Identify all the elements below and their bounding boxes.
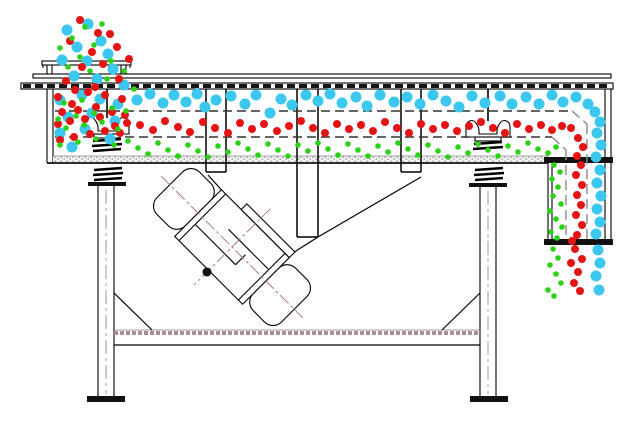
coarse-oversize-particle xyxy=(362,101,373,112)
medium-midsize-particle xyxy=(125,55,133,63)
medium-midsize-particle xyxy=(54,93,62,101)
medium-midsize-particle xyxy=(236,119,244,127)
lower-coil-spring xyxy=(93,168,123,180)
fine-undersize-particle xyxy=(77,54,83,60)
fine-undersize-particle xyxy=(355,147,361,153)
fine-undersize-particle xyxy=(135,145,141,151)
medium-midsize-particle xyxy=(285,122,293,130)
medium-midsize-particle xyxy=(573,152,581,160)
medium-midsize-particle xyxy=(477,118,485,126)
fine-undersize-particle xyxy=(445,154,451,160)
fine-undersize-particle xyxy=(435,148,441,154)
coarse-oversize-particle xyxy=(181,97,192,108)
coarse-oversize-particle xyxy=(200,102,211,113)
fine-undersize-particle xyxy=(87,68,93,74)
fine-undersize-particle xyxy=(465,150,471,156)
fine-undersize-particle xyxy=(545,287,551,293)
medium-midsize-particle xyxy=(574,134,582,142)
coarse-oversize-particle xyxy=(57,55,68,66)
coarse-oversize-particle xyxy=(240,99,251,110)
fine-undersize-particle xyxy=(55,116,61,122)
medium-midsize-particle xyxy=(94,29,102,37)
vibrating-screen-diagram xyxy=(0,0,638,428)
medium-midsize-particle xyxy=(576,287,584,295)
medium-midsize-particle xyxy=(260,120,268,128)
medium-midsize-particle xyxy=(577,161,585,169)
coarse-oversize-particle xyxy=(108,64,119,75)
fine-undersize-particle xyxy=(315,140,321,146)
fine-undersize-particle xyxy=(91,42,97,48)
medium-midsize-particle xyxy=(568,237,576,245)
medium-midsize-particle xyxy=(84,88,92,96)
medium-midsize-particle xyxy=(92,103,100,111)
right-leg xyxy=(470,187,508,402)
coarse-oversize-particle xyxy=(351,92,362,103)
fine-undersize-particle xyxy=(81,122,87,128)
medium-midsize-particle xyxy=(113,43,121,51)
fine-undersize-particle xyxy=(335,152,341,158)
coarse-oversize-particle xyxy=(211,95,222,106)
coarse-oversize-particle xyxy=(595,117,606,128)
medium-midsize-particle xyxy=(453,127,461,135)
coarse-oversize-particle xyxy=(96,36,107,47)
medium-midsize-particle xyxy=(273,127,281,135)
medium-midsize-particle xyxy=(345,125,353,133)
medium-midsize-particle xyxy=(66,117,74,125)
fine-undersize-particle xyxy=(559,224,565,230)
medium-midsize-particle xyxy=(101,91,109,99)
coarse-oversize-particle xyxy=(276,94,287,105)
fine-undersize-particle xyxy=(155,140,161,146)
fine-undersize-particle xyxy=(405,146,411,152)
medium-particles xyxy=(54,16,587,295)
medium-midsize-particle xyxy=(501,129,509,137)
fine-undersize-particle xyxy=(495,153,501,159)
fine-undersize-particle xyxy=(63,125,69,131)
fine-undersize-particle xyxy=(61,100,67,106)
coarse-oversize-particle xyxy=(591,271,602,282)
coarse-oversize-particle xyxy=(480,98,491,109)
medium-midsize-particle xyxy=(537,121,545,129)
coarse-oversize-particle xyxy=(591,229,602,240)
motor-cable-gland xyxy=(203,268,212,277)
medium-midsize-particle xyxy=(74,106,82,114)
fine-undersize-particle xyxy=(295,142,301,148)
fine-undersize-particle xyxy=(245,146,251,152)
coarse-oversize-particle xyxy=(69,71,80,82)
fine-undersize-particle xyxy=(165,147,171,153)
fine-undersize-particle xyxy=(553,216,559,222)
fine-undersize-particle xyxy=(551,293,557,299)
coarse-oversize-particle xyxy=(594,285,605,296)
right-foot-plate xyxy=(470,396,508,402)
fine-undersize-particle xyxy=(485,147,491,153)
fine-undersize-particle xyxy=(73,113,79,119)
medium-midsize-particle xyxy=(211,124,219,132)
chute-bottom-flange xyxy=(544,239,613,245)
fine-undersize-particle xyxy=(455,144,461,150)
medium-midsize-particle xyxy=(573,191,581,199)
medium-midsize-particle xyxy=(381,118,389,126)
fine-undersize-particle xyxy=(99,119,105,125)
coarse-oversize-particle xyxy=(251,90,262,101)
spring-seat-flange xyxy=(88,182,126,186)
medium-midsize-particle xyxy=(76,16,84,24)
medium-midsize-particle xyxy=(224,129,232,137)
medium-midsize-particle xyxy=(572,211,580,219)
coarse-oversize-particle xyxy=(596,191,607,202)
medium-midsize-particle xyxy=(525,125,533,133)
medium-midsize-particle xyxy=(579,143,587,151)
left-foot-plate xyxy=(87,396,125,402)
medium-midsize-particle xyxy=(417,120,425,128)
medium-midsize-particle xyxy=(101,127,109,135)
coarse-oversize-particle xyxy=(415,99,426,110)
fine-undersize-particle xyxy=(558,201,564,207)
coarse-oversize-particle xyxy=(521,92,532,103)
coarse-oversize-particle xyxy=(301,90,312,101)
fine-undersize-particle xyxy=(195,148,201,154)
medium-midsize-particle xyxy=(174,123,182,131)
coarse-oversize-particle xyxy=(192,89,203,100)
fine-undersize-particle xyxy=(79,97,85,103)
medium-midsize-particle xyxy=(136,121,144,129)
medium-midsize-particle xyxy=(161,117,169,125)
medium-midsize-particle xyxy=(578,181,586,189)
coarse-oversize-particle xyxy=(571,92,582,103)
coarse-oversize-particle xyxy=(596,140,607,151)
fine-undersize-particle xyxy=(57,45,63,51)
fine-undersize-particle xyxy=(550,193,556,199)
fine-undersize-particle xyxy=(275,147,281,153)
fine-undersize-particle xyxy=(547,262,553,268)
coarse-oversize-particle xyxy=(592,204,603,215)
medium-midsize-particle xyxy=(574,268,582,276)
fine-undersize-particle xyxy=(115,126,121,132)
medium-midsize-particle xyxy=(405,129,413,137)
medium-midsize-particle xyxy=(429,125,437,133)
fine-undersize-particle xyxy=(104,76,110,82)
right-gusset xyxy=(442,293,480,330)
coarse-oversize-particle xyxy=(313,96,324,107)
coarse-oversize-particle xyxy=(547,90,558,101)
fine-undersize-particle xyxy=(205,154,211,160)
medium-midsize-particle xyxy=(465,122,473,130)
fine-undersize-particle xyxy=(185,142,191,148)
coarse-oversize-particle xyxy=(467,91,478,102)
coarse-oversize-particle xyxy=(507,99,518,110)
fine-undersize-particle xyxy=(215,143,221,149)
coarse-oversize-particle xyxy=(62,25,73,36)
left-leg xyxy=(87,186,125,402)
coarse-oversize-particle xyxy=(169,90,180,101)
medium-midsize-particle xyxy=(91,83,99,91)
medium-midsize-particle xyxy=(62,77,70,85)
fine-undersize-particle xyxy=(548,229,554,235)
fine-undersize-particle xyxy=(365,153,371,159)
medium-midsize-particle xyxy=(489,124,497,132)
fine-undersize-particle xyxy=(375,143,381,149)
fine-undersize-particle xyxy=(385,149,391,155)
coarse-oversize-particle xyxy=(145,89,156,100)
medium-midsize-particle xyxy=(577,201,585,209)
fine-undersize-particle xyxy=(93,136,99,142)
fine-undersize-particle xyxy=(558,280,564,286)
fine-undersize-particle xyxy=(555,184,561,190)
medium-midsize-particle xyxy=(548,126,556,134)
lower-coil-spring xyxy=(474,168,504,180)
medium-midsize-particle xyxy=(115,75,123,83)
medium-midsize-particle xyxy=(393,124,401,132)
trough-bottom-plate xyxy=(53,156,548,163)
fine-undersize-particle xyxy=(225,149,231,155)
fine-undersize-particle xyxy=(425,142,431,148)
fine-undersize-particle xyxy=(553,271,559,277)
spring-seat-flange xyxy=(469,183,507,187)
coarse-oversize-particle xyxy=(592,128,603,139)
coarse-oversize-particle xyxy=(325,89,336,100)
medium-midsize-particle xyxy=(186,128,194,136)
medium-midsize-particle xyxy=(106,30,114,38)
fine-undersize-particle xyxy=(525,140,531,146)
fine-undersize-particle xyxy=(175,153,181,159)
fine-undersize-particle xyxy=(91,110,97,116)
medium-midsize-particle xyxy=(118,95,126,103)
coarse-oversize-particle xyxy=(593,245,604,256)
diagram-canvas xyxy=(0,0,638,428)
fine-undersize-particle xyxy=(255,152,261,158)
medium-midsize-particle xyxy=(58,108,66,116)
medium-midsize-particle xyxy=(513,120,521,128)
fine-undersize-particle xyxy=(75,139,81,145)
medium-midsize-particle xyxy=(248,125,256,133)
fine-undersize-particle xyxy=(395,140,401,146)
coarse-oversize-particle xyxy=(265,108,276,119)
coarse-oversize-particle xyxy=(226,91,237,102)
fine-undersize-particle xyxy=(505,143,511,149)
coarse-oversize-particle xyxy=(558,97,569,108)
medium-midsize-particle xyxy=(309,124,317,132)
medium-midsize-particle xyxy=(558,122,566,130)
medium-midsize-particle xyxy=(297,117,305,125)
medium-midsize-particle xyxy=(578,221,586,229)
coarse-oversize-particle xyxy=(534,99,545,110)
fine-undersize-particle xyxy=(65,64,71,70)
medium-midsize-particle xyxy=(78,63,86,71)
coarse-oversize-particle xyxy=(495,91,506,102)
medium-midsize-particle xyxy=(572,171,580,179)
fine-undersize-particle xyxy=(325,146,331,152)
left-gusset xyxy=(114,293,152,330)
fine-undersize-particle xyxy=(131,86,137,92)
coarse-oversize-particle xyxy=(428,90,439,101)
fine-undersize-particle xyxy=(108,58,114,64)
fine-undersize-particle xyxy=(415,152,421,158)
coarse-oversize-particle xyxy=(595,165,606,176)
coarse-oversize-particle xyxy=(591,152,602,163)
medium-midsize-particle xyxy=(81,115,89,123)
fine-undersize-particle xyxy=(554,235,560,241)
medium-midsize-particle xyxy=(333,120,341,128)
fine-undersize-particle xyxy=(121,68,127,74)
medium-midsize-particle xyxy=(321,129,329,137)
medium-midsize-particle xyxy=(199,118,207,126)
coarse-oversize-particle xyxy=(454,102,465,113)
medium-midsize-particle xyxy=(567,124,575,132)
coarse-oversize-particle xyxy=(402,92,413,103)
fine-undersize-particle xyxy=(109,105,115,111)
fine-undersize-particle xyxy=(57,142,63,148)
coarse-oversize-particle xyxy=(132,95,143,106)
coarse-oversize-particle xyxy=(337,98,348,109)
medium-midsize-particle xyxy=(567,259,575,267)
fine-undersize-particle xyxy=(557,169,563,175)
top-cover xyxy=(21,74,613,89)
medium-midsize-particle xyxy=(441,121,449,129)
coarse-oversize-particle xyxy=(92,74,103,85)
coarse-oversize-particle xyxy=(389,97,400,108)
fine-undersize-particle xyxy=(549,176,555,182)
coarse-oversize-particle xyxy=(103,49,114,60)
fine-undersize-particle xyxy=(515,149,521,155)
fine-undersize-particle xyxy=(475,141,481,147)
coarse-oversize-particle xyxy=(287,100,298,111)
fine-undersize-particle xyxy=(111,142,117,148)
vibration-motor xyxy=(123,138,341,356)
fine-undersize-particle xyxy=(550,246,556,252)
medium-midsize-particle xyxy=(99,60,107,68)
fine-undersize-particle xyxy=(145,151,151,157)
fine-undersize-particle xyxy=(545,150,551,156)
fine-undersize-particle xyxy=(345,141,351,147)
coarse-oversize-particle xyxy=(590,107,601,118)
coarse-oversize-particle xyxy=(592,178,603,189)
fine-undersize-particle xyxy=(547,208,553,214)
medium-midsize-particle xyxy=(149,126,157,134)
fine-undersize-particle xyxy=(123,108,129,114)
fine-undersize-particle xyxy=(265,141,271,147)
fine-undersize-particle xyxy=(82,24,88,30)
medium-midsize-particle xyxy=(68,100,76,108)
medium-midsize-particle xyxy=(570,279,578,287)
fine-undersize-particle xyxy=(535,146,541,152)
fine-undersize-particle xyxy=(553,144,559,150)
medium-midsize-particle xyxy=(123,119,131,127)
fine-undersize-particle xyxy=(305,148,311,154)
coarse-oversize-particle xyxy=(158,98,169,109)
medium-midsize-particle xyxy=(571,245,579,253)
coarse-oversize-particle xyxy=(595,258,606,269)
fine-undersize-particle xyxy=(235,140,241,146)
fine-undersize-particle xyxy=(551,162,557,168)
medium-midsize-particle xyxy=(578,255,586,263)
medium-midsize-particle xyxy=(71,86,79,94)
medium-midsize-particle xyxy=(86,130,94,138)
medium-midsize-particle xyxy=(88,48,96,56)
coarse-oversize-particle xyxy=(595,217,606,228)
fine-undersize-particle xyxy=(125,138,131,144)
fine-undersize-particle xyxy=(285,153,291,159)
fine-undersize-particle xyxy=(69,35,75,41)
fine-undersize-particle xyxy=(555,255,561,261)
medium-midsize-particle xyxy=(357,121,365,129)
coarse-oversize-particle xyxy=(441,96,452,107)
fine-undersize-particle xyxy=(99,21,105,27)
medium-midsize-particle xyxy=(369,127,377,135)
coarse-oversize-particle xyxy=(375,90,386,101)
